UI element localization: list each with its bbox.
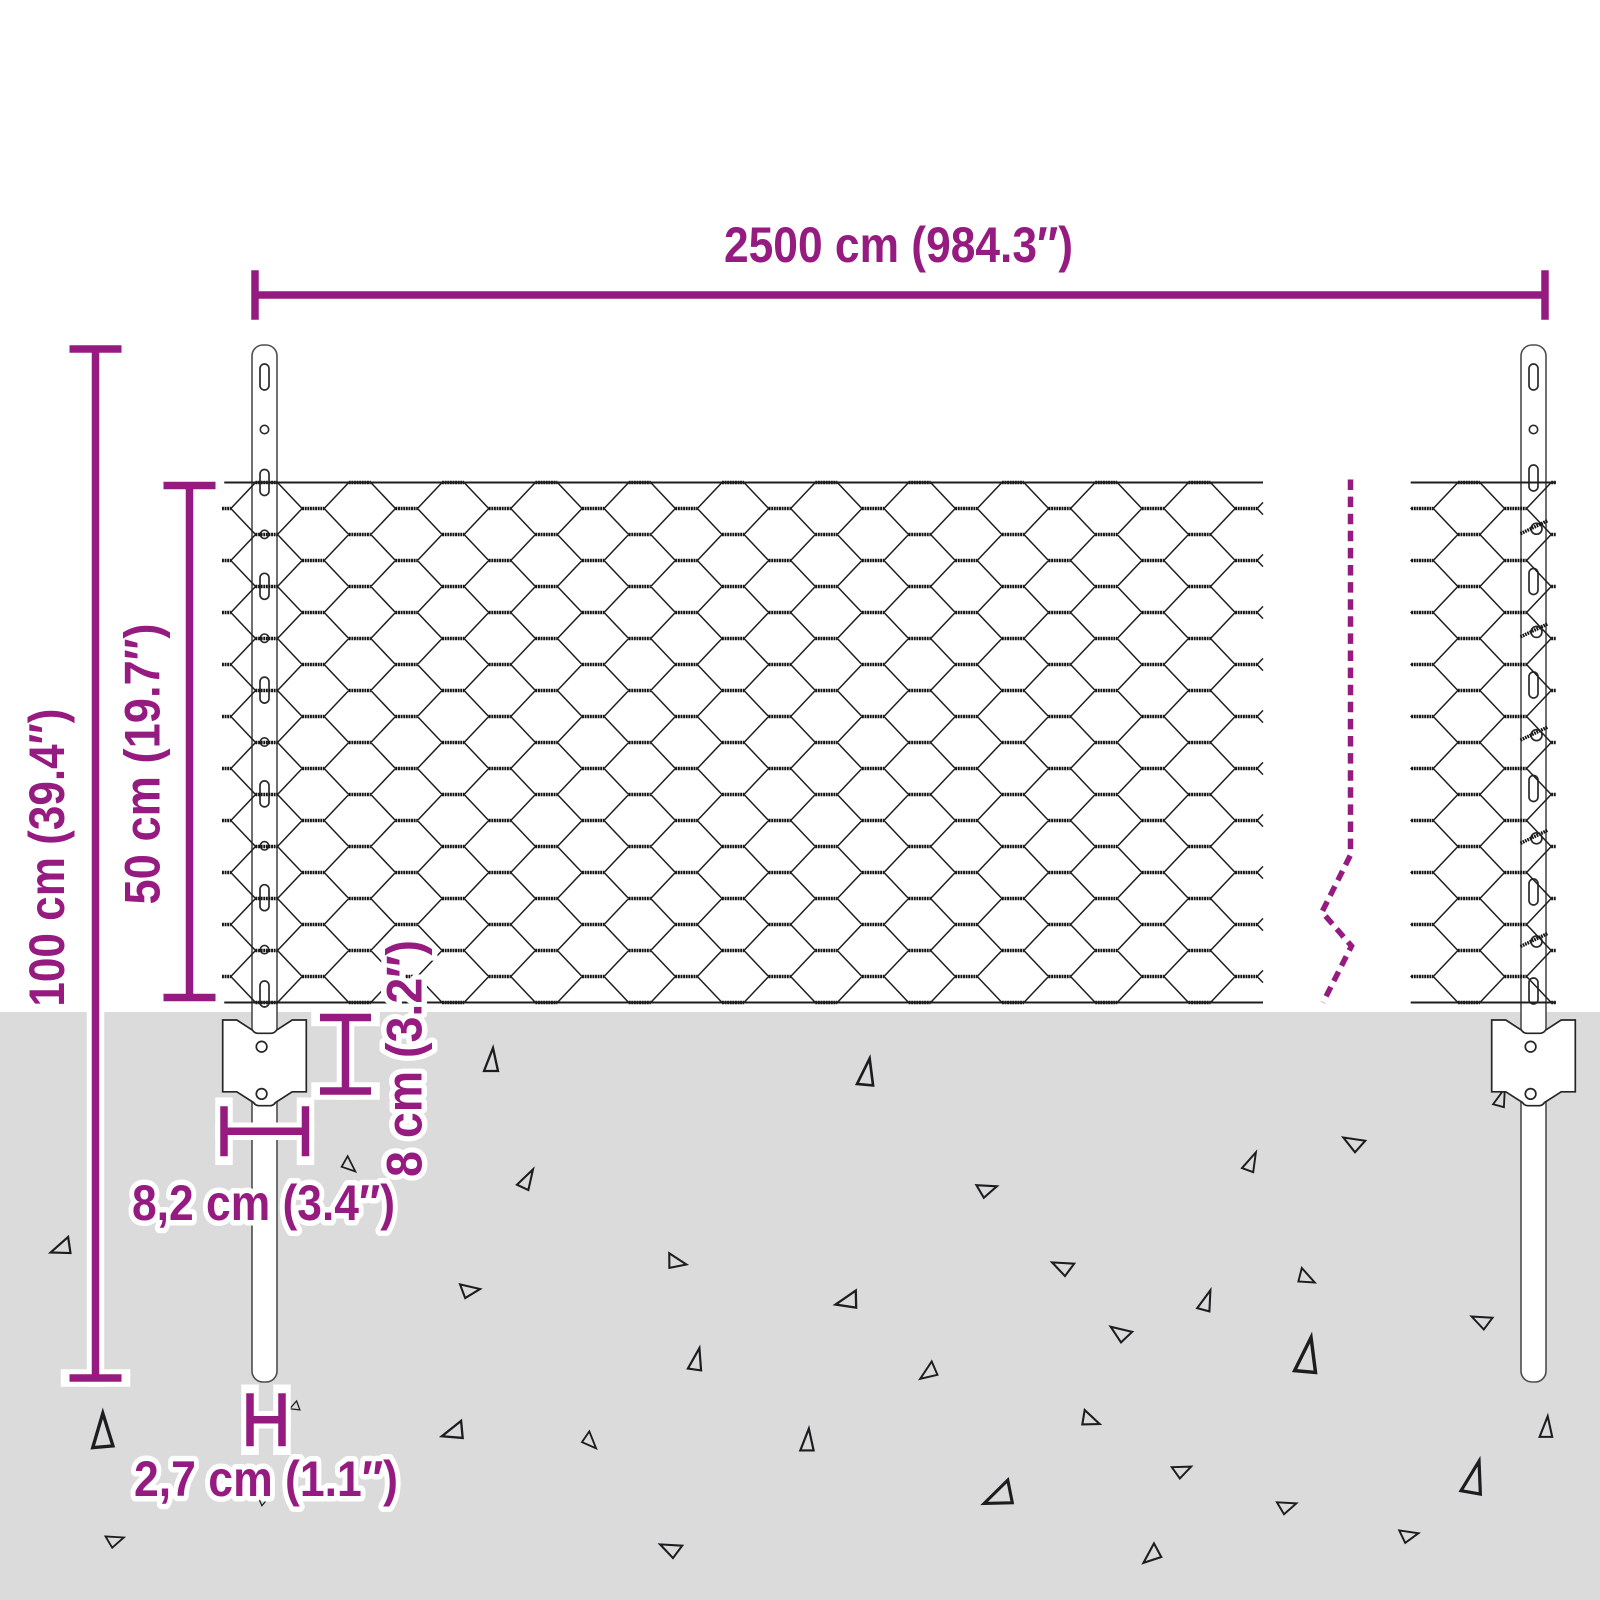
svg-text:2,7 cm (1.1″): 2,7 cm (1.1″) — [134, 1451, 398, 1507]
svg-text:8 cm (3.2″): 8 cm (3.2″) — [377, 940, 433, 1177]
svg-text:2500 cm (984.3″): 2500 cm (984.3″) — [724, 217, 1073, 273]
svg-text:100 cm (39.4″): 100 cm (39.4″) — [19, 709, 75, 1007]
svg-text:8,2 cm (3.4″): 8,2 cm (3.4″) — [132, 1175, 395, 1231]
svg-text:50 cm (19.7″): 50 cm (19.7″) — [115, 624, 171, 905]
